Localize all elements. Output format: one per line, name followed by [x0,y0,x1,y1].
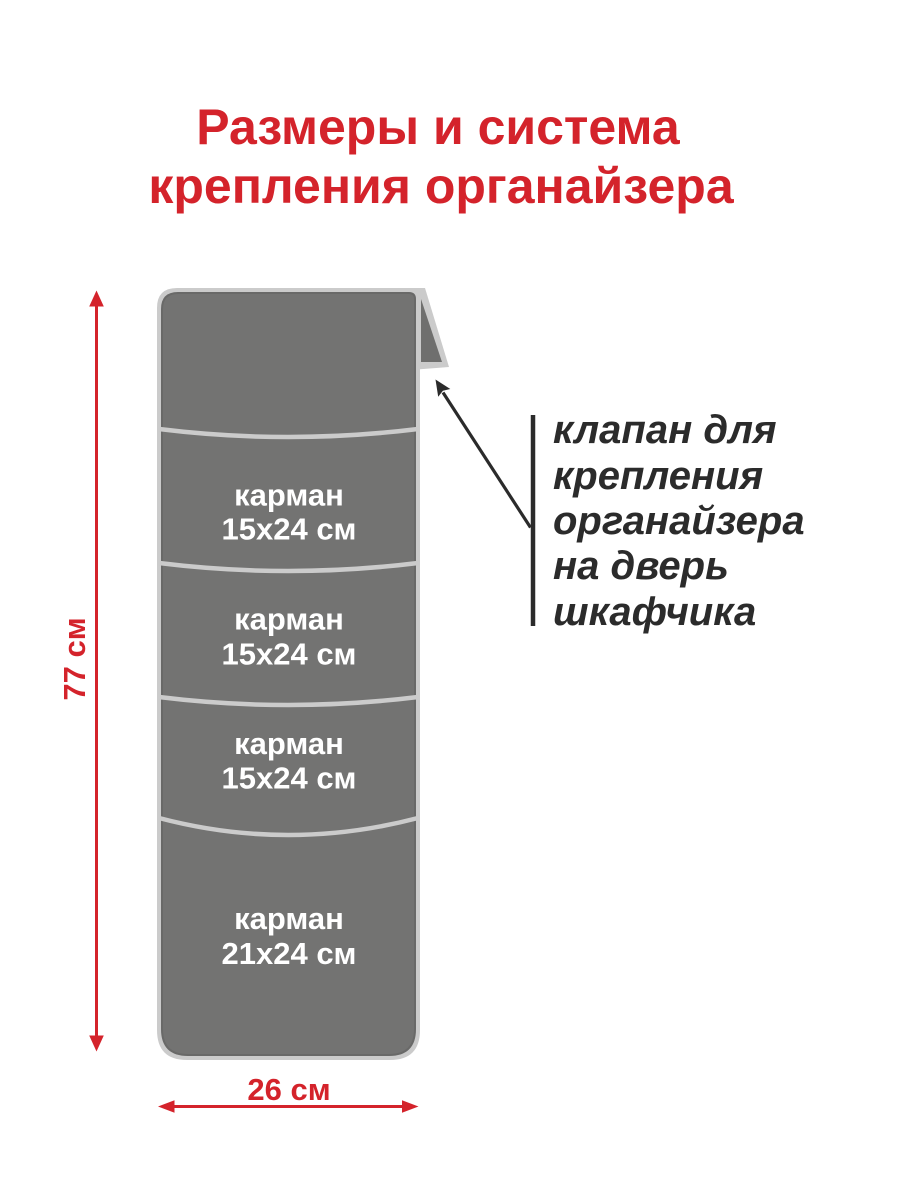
svg-text:органайзера: органайзера [553,499,805,543]
svg-text:26 см: 26 см [247,1072,330,1107]
svg-text:карман: карман [234,602,344,637]
svg-text:на дверь: на дверь [553,544,729,588]
svg-text:карман: карман [234,726,344,761]
svg-text:77 см: 77 см [57,617,92,700]
svg-text:15х24 см: 15х24 см [222,637,357,672]
svg-text:клапан для: клапан для [553,408,777,452]
svg-text:Размеры и система: Размеры и система [196,99,681,155]
svg-text:карман: карман [234,901,344,936]
svg-text:15х24 см: 15х24 см [222,512,357,547]
svg-text:крепления: крепления [553,454,763,498]
svg-text:карман: карман [234,478,344,513]
svg-text:крепления органайзера: крепления органайзера [148,158,734,214]
svg-text:шкафчика: шкафчика [553,590,756,634]
svg-text:21х24 см: 21х24 см [222,936,357,971]
svg-text:15х24 см: 15х24 см [222,761,357,796]
